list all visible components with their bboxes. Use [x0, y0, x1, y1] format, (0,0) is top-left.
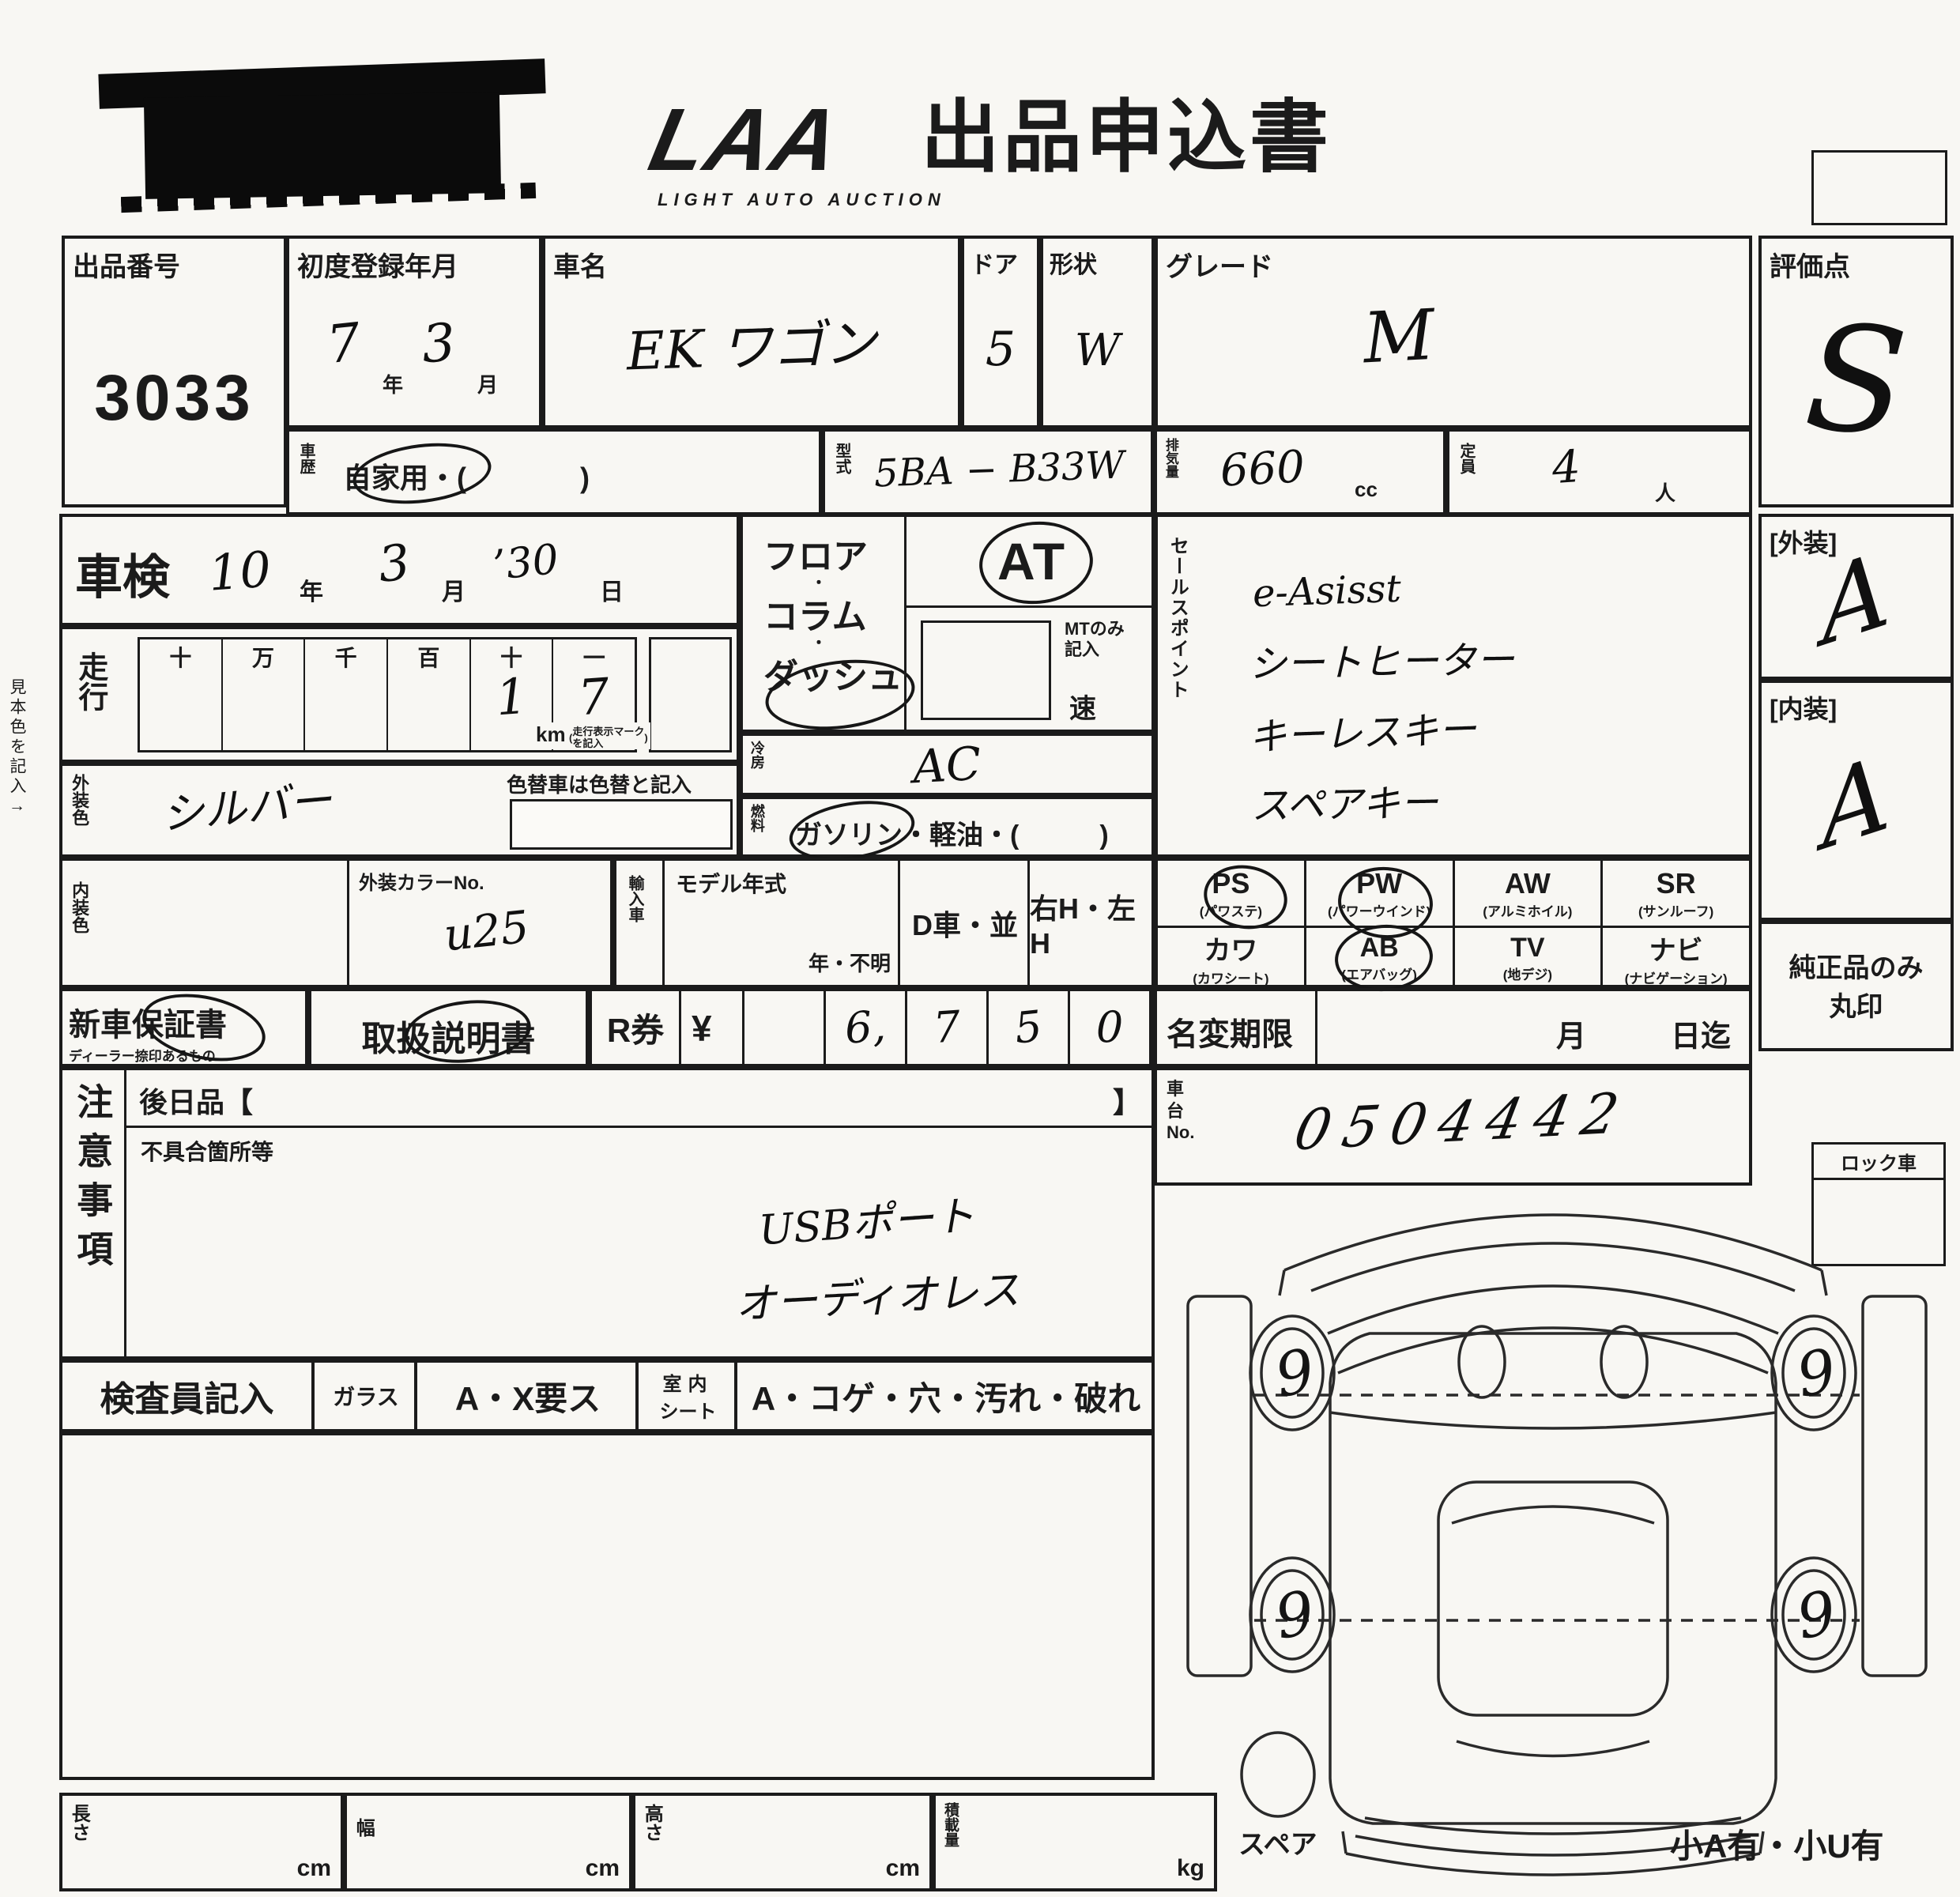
score-cell: 評価点 S	[1758, 236, 1954, 507]
sales-points-cell: セールスポイント e-Asisst シートヒーター キーレスキー スペアキー	[1155, 514, 1752, 858]
digit-header: 十	[140, 641, 221, 673]
genuine-parts-cell: 純正品のみ 丸印	[1758, 921, 1954, 1051]
grade-cell: グレード M	[1155, 236, 1752, 428]
first-registration-cell: 初度登録年月 7 年 3 月	[286, 236, 542, 428]
car-name-value: EK ワゴン	[545, 315, 959, 381]
margin-note: 見本色を記入→	[8, 678, 25, 818]
equip-sub: (地デジ)	[1503, 964, 1552, 983]
notes-hand-line: オーディオレス	[734, 1270, 1021, 1326]
digit-value: 7	[552, 669, 636, 724]
r-ticket-cell: R券 ¥ 6, 7 5 0	[589, 988, 1154, 1067]
mt-entry-box	[921, 620, 1051, 720]
chassis-number-value: 0504442	[1290, 1085, 1635, 1159]
lot-number-label: 出品番号	[73, 245, 284, 284]
seat-value: A・コゲ・穴・汚れ・破れ	[752, 1372, 1140, 1420]
history-label: 車歴	[297, 443, 314, 474]
digit-header: 千	[305, 641, 386, 673]
speed-label: 速	[1069, 687, 1096, 726]
inspector-label: 検査員記入	[100, 1371, 274, 1421]
car-diagram: 9 9 9 9 スペア 小A有・小U有	[1166, 1150, 1948, 1889]
inspection-notes-box	[59, 1432, 1155, 1780]
amount-cell: 5	[1012, 1005, 1044, 1050]
width-unit: cm	[586, 1855, 620, 1882]
width-cell: 幅 cm	[344, 1793, 632, 1891]
shape-label: 形状	[1050, 245, 1151, 280]
later-items-label: 後日品【	[139, 1080, 253, 1121]
name-change-day-until: 日迄	[1671, 1012, 1731, 1055]
score-value: S	[1757, 301, 1955, 460]
shift-dot: ・	[811, 639, 904, 648]
height-unit: cm	[886, 1855, 920, 1882]
genuine-note-line1: 純正品のみ	[1762, 946, 1951, 985]
cc-unit: cc	[1355, 477, 1378, 502]
exterior-rating-value: A	[1815, 538, 1894, 661]
equip-sub: (ナビゲーション)	[1625, 967, 1728, 987]
km-note-line2: を記入	[572, 737, 603, 749]
displacement-label: 排気量	[1163, 438, 1178, 478]
import-car-cell: 輸入車 モデル年式 年・不明 D車・並 右H・左H	[613, 858, 1155, 988]
length-label: 長さ	[69, 1804, 89, 1842]
shape-cell: 形状 W	[1040, 236, 1155, 428]
model-code-cell: 型式 5BA − B33W	[822, 428, 1154, 515]
color-no-label: 外装カラーNo.	[359, 867, 616, 895]
seat-label-top: 室内	[663, 1368, 714, 1396]
amount-cell: 7	[932, 1005, 962, 1050]
laa-logo: LAA	[641, 89, 850, 190]
equip-sub: (アルミホイル)	[1483, 900, 1572, 920]
shift-column: コラム	[763, 588, 904, 639]
height-cell: 高さ cm	[632, 1793, 933, 1891]
interior-rating-label: [内装]	[1770, 689, 1951, 726]
interior-rating-cell: [内装] A	[1758, 680, 1954, 921]
exterior-color-cell: 外装色 シルバー 色替車は色替と記入	[59, 763, 740, 858]
name-change-month-unit: 月	[1556, 1012, 1586, 1055]
shift-cell: フロア ・ コラム ・ ダッシュ AT MTのみ記入 速	[740, 514, 1155, 733]
mileage-label: 走行	[73, 651, 105, 711]
yen-sign: ¥	[692, 1007, 712, 1050]
digit-header: 百	[388, 641, 469, 673]
fuel-label: 燃料	[749, 804, 764, 832]
interior-rating-value: A	[1815, 742, 1894, 865]
digit-header: 万	[223, 641, 304, 673]
capacity-cell: 定員 4 人	[1446, 428, 1752, 515]
later-items-bracket-close: 】	[1113, 1080, 1141, 1121]
year-unknown: 年・不明	[808, 948, 891, 977]
handwritten-circle-ab	[1332, 922, 1435, 994]
aircon-value: AC	[912, 741, 982, 790]
d-car-label: D車・並	[912, 903, 1018, 944]
width-label: 幅	[353, 1818, 373, 1837]
notes-label: 注意事項	[73, 1083, 111, 1279]
fuel-cell: 燃料 ガソリン・軽油・( )	[740, 796, 1155, 858]
first-reg-month-value: 3	[420, 317, 458, 371]
history-cell: 車歴 自家用・( )	[286, 428, 822, 515]
capacity-value: 4	[1551, 445, 1581, 491]
sales-point-line: シートヒーター	[1249, 641, 1515, 684]
interior-color-cell: 内装色 外装カラーNo. u25	[59, 858, 613, 988]
equipment-grid: PS (パワステ) PW (パワーウインド) AW (アルミホイル) SR (サ…	[1155, 858, 1752, 988]
grade-value: M	[1362, 300, 1437, 374]
length-unit: cm	[297, 1855, 331, 1882]
r-ticket-label: R券	[607, 1004, 664, 1052]
doors-label: ドア	[971, 245, 1037, 280]
car-name-cell: 車名 EK ワゴン	[542, 236, 961, 428]
equip-code-tv: TV	[1510, 933, 1544, 964]
mt-note: MTのみ記入	[1065, 619, 1125, 661]
height-label: 高さ	[642, 1804, 661, 1842]
first-registration-label: 初度登録年月	[297, 245, 539, 284]
warranty-cell: 新車保証書 ディーラー捺印あるもの	[59, 988, 308, 1067]
amount-cell: 6,	[843, 1005, 887, 1050]
capacity-label: 定員	[1457, 443, 1474, 474]
repaint-box	[510, 799, 733, 850]
mileage-mark-box	[649, 637, 732, 752]
aircon-cell: 冷房 AC	[740, 733, 1155, 796]
seat-label-bottom: シート	[660, 1396, 717, 1424]
chassis-number-label: 車台No.	[1167, 1078, 1194, 1144]
shift-floor: フロア	[763, 528, 904, 579]
redacted-stamp	[99, 49, 557, 215]
shaken-label: 車検	[75, 539, 170, 608]
sales-points-label: セールスポイント	[1167, 536, 1187, 700]
defects-label: 不具合箇所等	[141, 1135, 273, 1167]
exterior-rating-cell: [外装] A	[1758, 514, 1954, 680]
name-change-cell: 名変期限 月 日迄	[1154, 988, 1752, 1067]
exterior-color-value: シルバー	[160, 779, 334, 837]
handwritten-circle-history	[349, 436, 495, 511]
length-cell: 長さ cm	[59, 1793, 344, 1891]
wheel-tread-rr: 9	[1792, 1577, 1841, 1653]
equip-sub: (サンルーフ)	[1638, 900, 1713, 920]
displacement-cell: 排気量 660 cc	[1154, 428, 1446, 515]
doors-cell: ドア 5	[961, 236, 1040, 428]
equip-code-aw: AW	[1505, 867, 1551, 900]
sales-point-line: キーレスキー	[1248, 711, 1477, 756]
mileage-cell: 走行 十 万 千 百 十1 一7 km (走行表示マークを記入)	[59, 626, 740, 763]
page-title: 出品申込書	[921, 73, 1332, 187]
month-unit: 月	[477, 369, 498, 398]
shift-dot: ・	[811, 579, 904, 588]
small-a-u-note: 小A有・小U有	[1670, 1827, 1884, 1865]
sales-point-line: スペアキー	[1251, 784, 1438, 825]
wheel-tread-rl: 9	[1270, 1577, 1320, 1653]
car-name-label: 車名	[553, 245, 958, 284]
handle-label: 右H・左H	[1030, 886, 1155, 960]
equip-sub: (カワシート)	[1193, 967, 1268, 987]
score-label: 評価点	[1770, 245, 1951, 284]
load-label: 積載量	[942, 1802, 958, 1847]
spare-tire-circle	[1242, 1733, 1314, 1816]
shaken-day-unit: 日	[600, 572, 624, 607]
model-year-label: モデル年式	[676, 867, 900, 899]
notes-cell: 注意事項 後日品【 】 不具合箇所等 USBポート オーディオレス	[59, 1067, 1155, 1360]
wheel-tread-fl: 9	[1270, 1335, 1320, 1411]
amount-cell: 0	[1096, 1006, 1123, 1049]
lot-number-value: 3033	[65, 361, 284, 436]
interior-color-label: 内装色	[70, 881, 89, 933]
exterior-color-label: 外装色	[70, 774, 89, 826]
displacement-value: 660	[1219, 445, 1306, 494]
genuine-note-line2: 丸印	[1762, 985, 1951, 1024]
sales-point-line: e-Asisst	[1252, 570, 1401, 613]
model-code-value: 5BA − B33W	[873, 446, 1125, 492]
shaken-day-value: ’30	[492, 539, 561, 586]
shaken-year-value: 10	[207, 545, 273, 598]
shape-value: W	[1043, 329, 1151, 373]
nin-unit: 人	[1655, 477, 1675, 507]
equip-code-navi: ナビ	[1649, 929, 1703, 967]
shaken-year-unit: 年	[300, 572, 323, 607]
equip-code-kawa: カワ	[1204, 929, 1257, 967]
laa-logo-subtitle: LIGHT AUTO AUCTION	[658, 190, 946, 210]
header-empty-box	[1811, 150, 1947, 225]
spare-label: スペア	[1238, 1830, 1317, 1860]
repaint-note: 色替車は色替と記入	[507, 769, 692, 798]
handwritten-circle-at	[976, 517, 1097, 609]
grade-label: グレード	[1166, 245, 1749, 284]
car-side-panel-right	[1863, 1296, 1926, 1676]
model-code-label: 型式	[833, 443, 850, 474]
auction-sheet: LAA LIGHT AUTO AUCTION 出品申込書 出品番号 3033 初…	[0, 0, 1960, 1897]
km-unit: km	[536, 722, 566, 746]
car-body-outline	[1330, 1333, 1776, 1823]
glass-value: A・X要ス	[455, 1372, 601, 1420]
import-label: 輸入車	[626, 875, 643, 922]
equip-code-sr: SR	[1657, 867, 1696, 900]
color-no-value: u25	[442, 906, 531, 959]
lot-number-cell: 出品番号 3033	[62, 236, 287, 507]
notes-hand-line: USBポート	[758, 1196, 977, 1252]
shaken-cell: 車検 10 年 3 月 ’30 日	[59, 514, 740, 626]
km-note-line1: 走行表示マーク	[572, 726, 644, 737]
year-unit: 年	[383, 369, 403, 398]
shaken-month-value: 3	[376, 537, 413, 590]
inspector-row: 検査員記入 ガラス A・X要ス 室内 シート A・コゲ・穴・汚れ・破れ	[59, 1360, 1155, 1432]
car-side-panel-left	[1188, 1296, 1251, 1676]
digit-value: 1	[469, 669, 554, 724]
wheel-tread-fr: 9	[1792, 1335, 1841, 1411]
first-reg-year-value: 7	[325, 316, 364, 371]
manual-cell: 取扱説明書	[308, 988, 589, 1067]
aircon-label: 冷房	[749, 741, 764, 769]
name-change-label: 名変期限	[1167, 1009, 1293, 1054]
shaken-month-unit: 月	[442, 572, 465, 607]
km-note: km (走行表示マークを記入)	[533, 722, 650, 749]
glass-label: ガラス	[333, 1380, 398, 1412]
doors-value: 5	[964, 326, 1037, 373]
